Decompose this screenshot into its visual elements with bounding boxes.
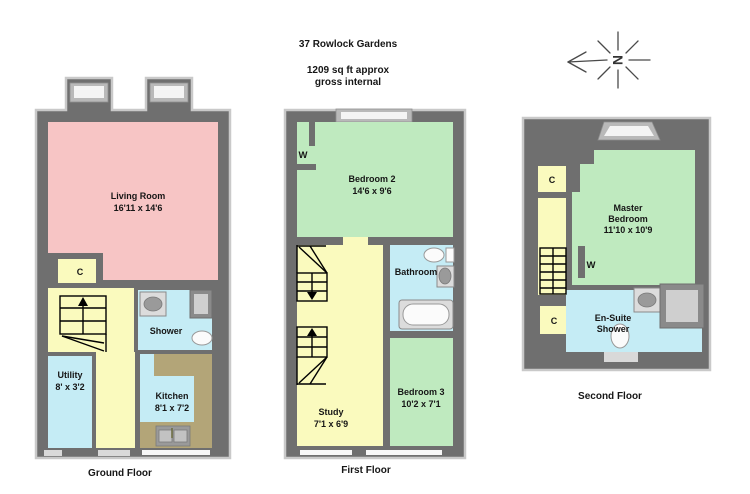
second-cupboard-upper-label: C bbox=[549, 175, 556, 185]
first-wardrobe-label: W bbox=[299, 150, 308, 161]
master-name-line1: Master bbox=[613, 203, 643, 213]
floorplan-canvas: 37 Rowlock Gardens 1209 sq ft approx gro… bbox=[0, 0, 750, 494]
master-size: 11'10 x 10'9 bbox=[604, 225, 653, 235]
study-size: 7'1 x 6'9 bbox=[314, 419, 348, 429]
wardrobe-wall-stub2 bbox=[578, 246, 585, 278]
first-floor-plan: W Bedroom 2 14'6 x 9'6 Bathroom Bedroom … bbox=[285, 109, 465, 476]
utility-size: 8' x 3'2 bbox=[55, 382, 84, 392]
area-line2: gross internal bbox=[315, 77, 381, 88]
floorplan-page: 37 Rowlock Gardens 1209 sq ft approx gro… bbox=[0, 0, 750, 494]
page-title: 37 Rowlock Gardens bbox=[299, 39, 398, 50]
ensuite-sink bbox=[634, 288, 660, 312]
compass-letter: N bbox=[610, 55, 626, 65]
kitchen-size: 8'1 x 7'2 bbox=[155, 403, 189, 413]
shower-room-name: Shower bbox=[150, 326, 183, 336]
living-room-size: 16'11 x 14'6 bbox=[114, 203, 163, 213]
bathtub bbox=[399, 300, 453, 329]
ground-toilet bbox=[192, 331, 212, 345]
compass-north-indicator: N bbox=[568, 32, 650, 88]
kitchen-window bbox=[142, 450, 210, 455]
bathroom-name: Bathroom bbox=[395, 267, 438, 277]
ensuite-shower-enclosure bbox=[660, 284, 704, 328]
bedroom2-name: Bedroom 2 bbox=[348, 174, 395, 184]
second-floor-label: Second Floor bbox=[578, 391, 642, 402]
front-door-opening bbox=[98, 450, 130, 456]
study-name: Study bbox=[318, 407, 343, 417]
bathroom-toilet bbox=[424, 248, 454, 262]
ground-floor-plan: Living Room 16'11 x 14'6 C Shower Utilit… bbox=[36, 78, 230, 479]
bay-window-right-glass bbox=[154, 86, 184, 98]
wardrobe-wall-stub-v bbox=[309, 122, 315, 146]
living-room-name: Living Room bbox=[111, 191, 166, 201]
ground-floor-label: Ground Floor bbox=[88, 468, 152, 479]
ensuite-name-line1: En-Suite bbox=[595, 313, 632, 323]
bedroom3-size: 10'2 x 7'1 bbox=[401, 399, 440, 409]
bedroom3-window bbox=[366, 450, 442, 455]
hallway-upper bbox=[48, 288, 134, 352]
second-floor-plan: C Master Bedroom 11'10 x 10'9 W C En-Sui… bbox=[523, 118, 710, 402]
second-cupboard-lower-label: C bbox=[551, 316, 558, 326]
bedroom3-name: Bedroom 3 bbox=[397, 387, 444, 397]
bedroom2-size: 14'6 x 9'6 bbox=[352, 186, 391, 196]
utility-name: Utility bbox=[57, 370, 82, 380]
shower-enclosure bbox=[190, 290, 212, 318]
ground-cupboard-label: C bbox=[77, 267, 84, 277]
kitchen-name: Kitchen bbox=[155, 391, 188, 401]
first-floor-label: First Floor bbox=[341, 465, 391, 476]
hallway-corridor bbox=[96, 352, 135, 448]
study-door-opening bbox=[343, 237, 368, 245]
area-line1: 1209 sq ft approx bbox=[307, 65, 390, 76]
ensuite-name-line2: Shower bbox=[597, 324, 630, 334]
bedroom2-window-glass bbox=[341, 112, 407, 119]
ceiling-slope-step2 bbox=[580, 150, 594, 164]
kitchen-counter-top bbox=[154, 354, 212, 376]
kitchen-sink bbox=[156, 426, 190, 446]
bay-window-left-glass bbox=[74, 86, 104, 98]
kitchen-counter-right bbox=[194, 376, 212, 422]
master-name-line2: Bedroom bbox=[608, 214, 648, 224]
ceiling-slope-step1 bbox=[572, 150, 580, 192]
second-wardrobe-label: W bbox=[587, 260, 596, 271]
wardrobe-wall-stub-h bbox=[297, 164, 316, 170]
shower-sink bbox=[140, 292, 166, 316]
utility-door-opening bbox=[44, 450, 62, 456]
study-window bbox=[300, 450, 352, 455]
bathroom-sink bbox=[437, 266, 454, 287]
dormer-window-glass bbox=[604, 126, 654, 136]
